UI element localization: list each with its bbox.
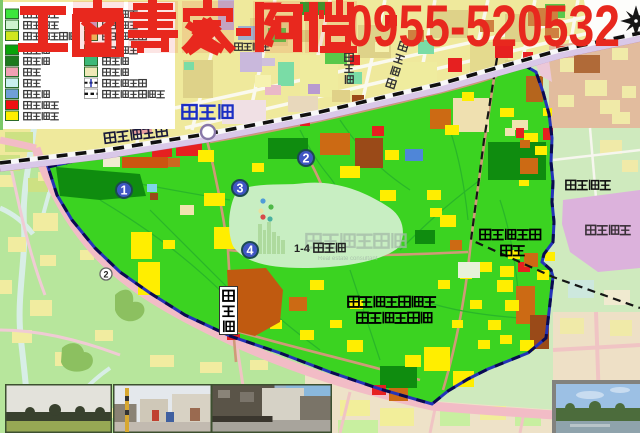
svg-text:1-4: 1-4 — [294, 243, 311, 255]
svg-text:3: 3 — [237, 182, 244, 196]
svg-text:Real estate consultant: Real estate consultant — [318, 256, 378, 262]
svg-text:2: 2 — [303, 152, 310, 166]
svg-text:2: 2 — [103, 270, 108, 280]
svg-text:0955-520532: 0955-520532 — [347, 0, 620, 59]
svg-text:4: 4 — [247, 244, 254, 258]
svg-text:1: 1 — [121, 184, 128, 198]
